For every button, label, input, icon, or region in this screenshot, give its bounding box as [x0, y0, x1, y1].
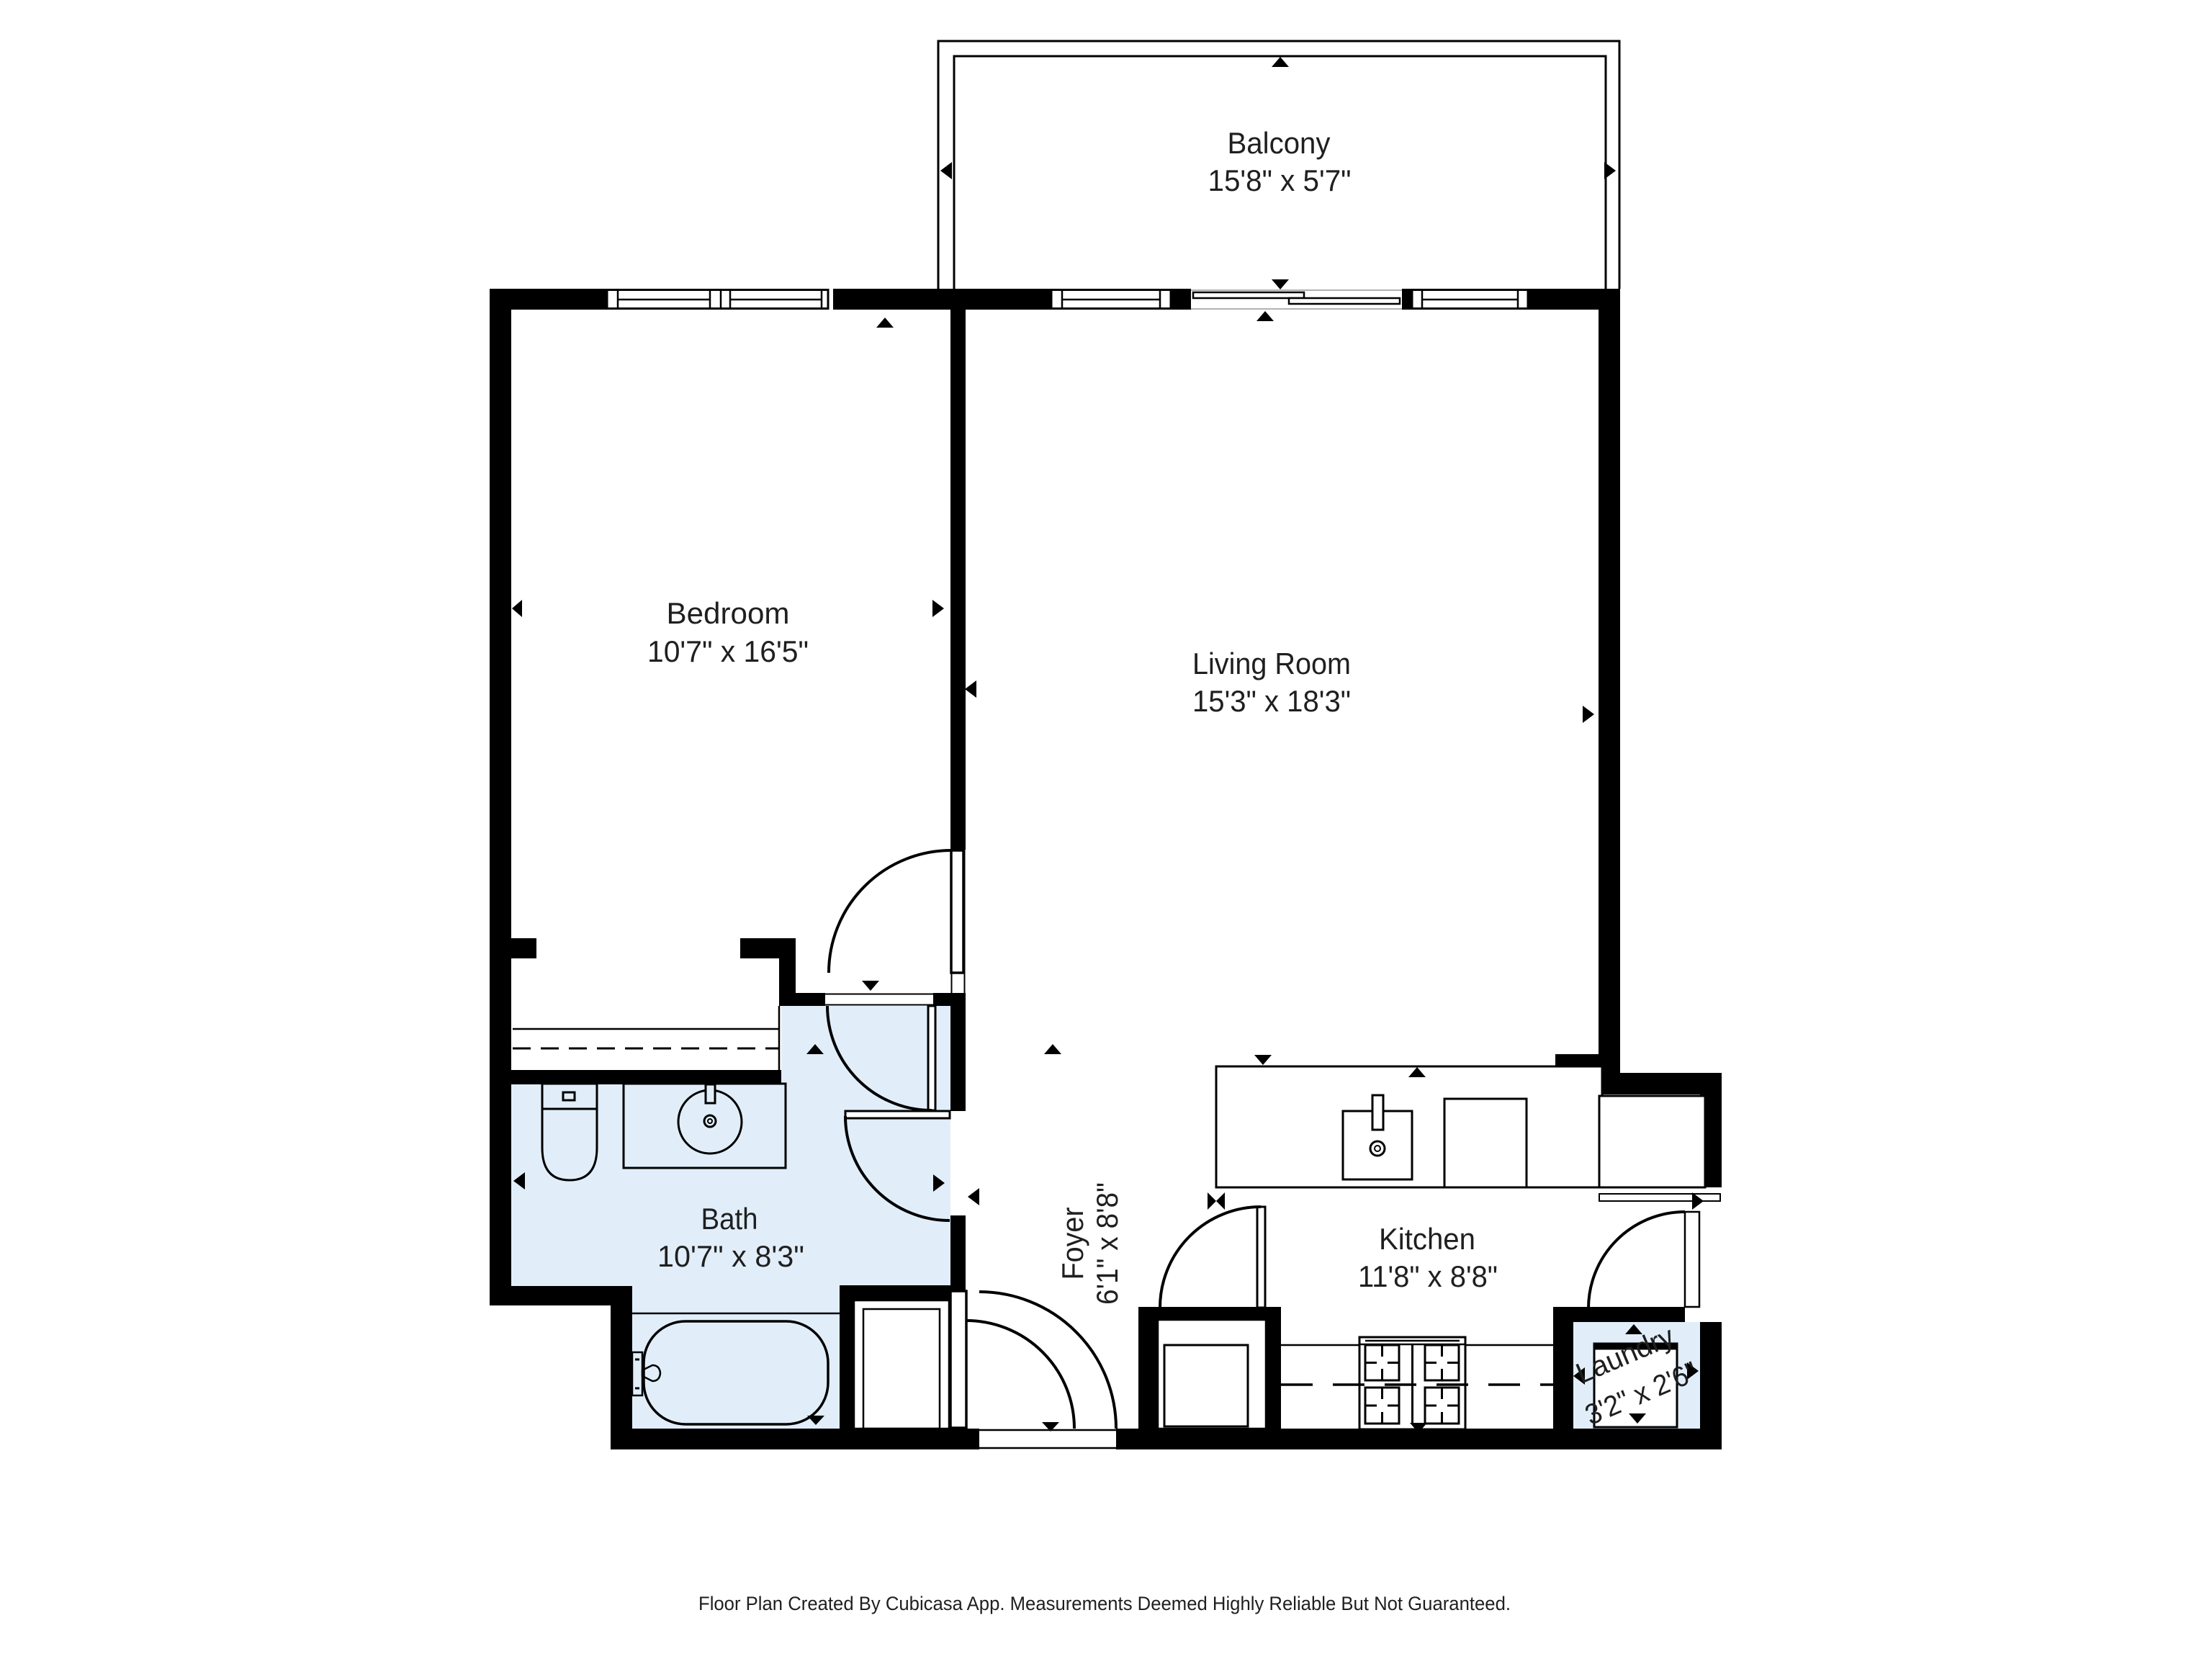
svg-text:Foyer: Foyer — [1056, 1207, 1089, 1280]
svg-text:15'3" x 18'3": 15'3" x 18'3" — [1192, 684, 1351, 718]
svg-text:Floor Plan Created By Cubicasa: Floor Plan Created By Cubicasa App. Meas… — [698, 1593, 1511, 1614]
svg-text:Balcony: Balcony — [1228, 126, 1331, 160]
svg-text:10'7" x 16'5": 10'7" x 16'5" — [647, 634, 809, 668]
svg-text:Kitchen: Kitchen — [1379, 1222, 1475, 1256]
svg-text:11'8" x 8'8": 11'8" x 8'8" — [1358, 1259, 1498, 1293]
svg-text:Bath: Bath — [701, 1202, 758, 1236]
svg-text:15'8" x 5'7": 15'8" x 5'7" — [1208, 163, 1352, 197]
svg-text:Living Room: Living Room — [1192, 647, 1351, 680]
svg-text:Bedroom: Bedroom — [667, 596, 790, 630]
svg-text:10'7" x 8'3": 10'7" x 8'3" — [657, 1239, 804, 1273]
svg-text:6'1" x 8'8": 6'1" x 8'8" — [1090, 1182, 1124, 1305]
